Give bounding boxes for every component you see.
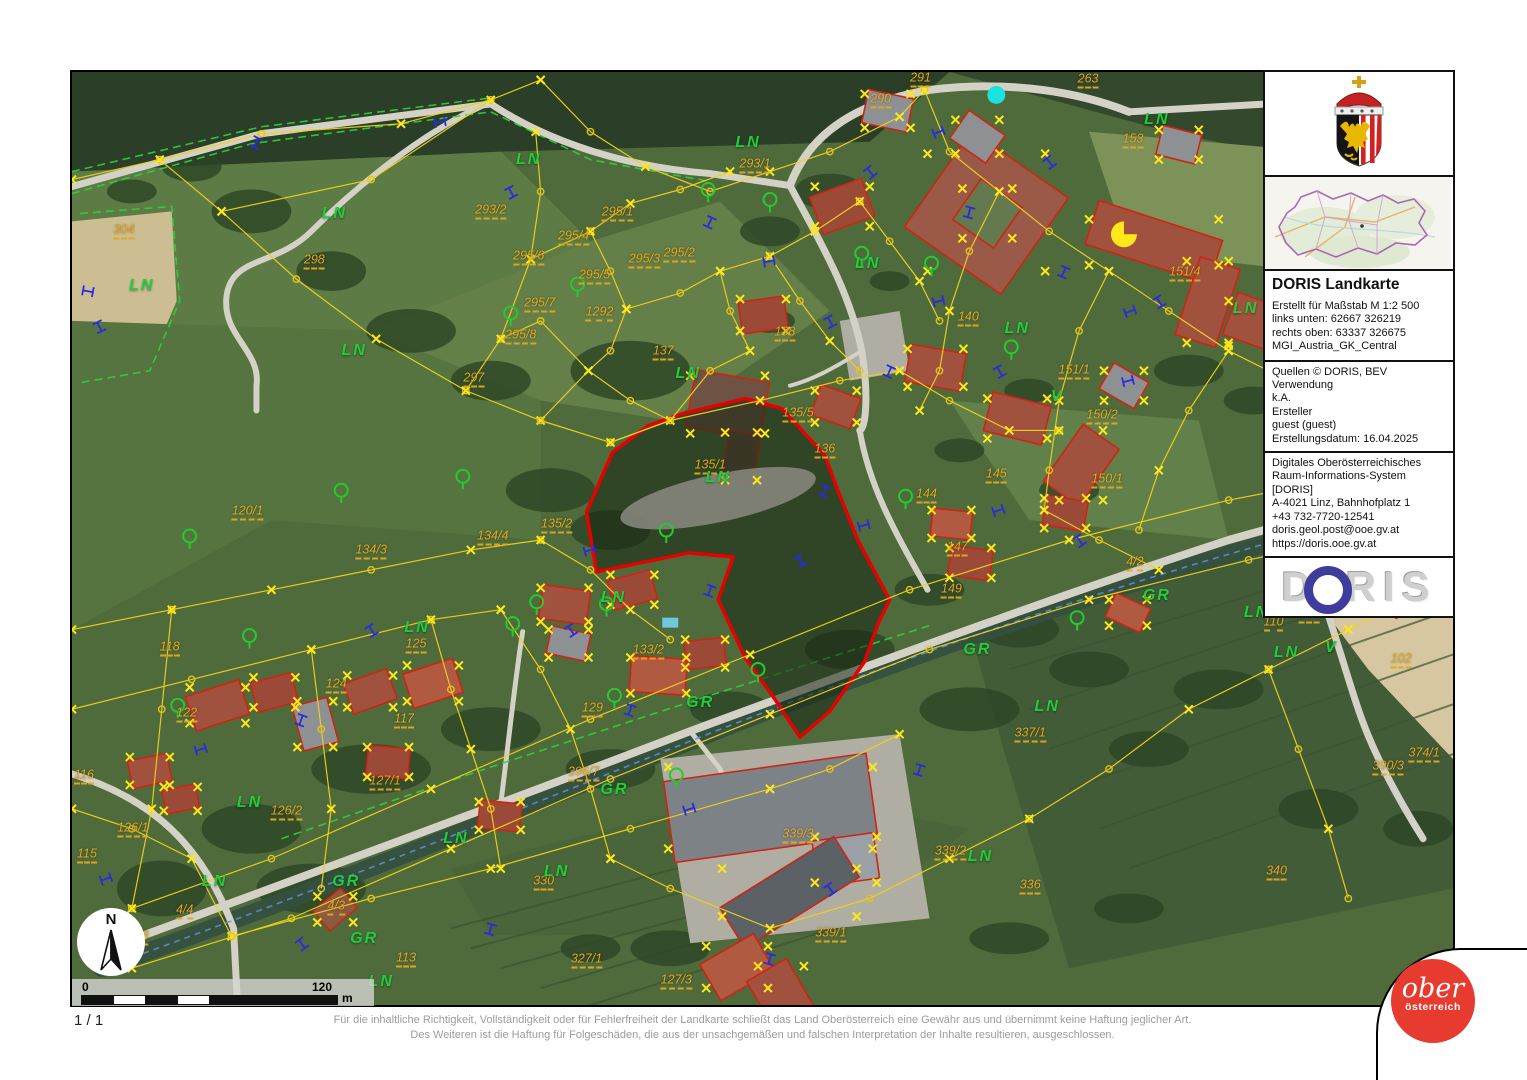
metadata-line: rechts oben: 63337 326675 <box>1272 327 1446 340</box>
metadata-line: links unten: 62667 326219 <box>1272 313 1446 326</box>
source-line: k.A. <box>1272 392 1446 405</box>
source-line: Verwendung <box>1272 379 1446 392</box>
doris-logo-ring-icon <box>1304 566 1352 614</box>
map-canvas[interactable] <box>72 72 1453 1005</box>
ooe-logo-text: ober <box>1391 973 1475 1004</box>
doris-logo: D RIS <box>1263 556 1455 618</box>
contact-line: https://doris.ooe.gv.at <box>1272 538 1446 551</box>
scale-segments <box>82 995 338 1003</box>
source-line: Ersteller <box>1272 406 1446 419</box>
info-panel: DORIS Landkarte Erstellt für Maßstab M 1… <box>1263 70 1455 618</box>
scale-start: 0 <box>82 980 89 994</box>
contact-line: Raum-Informations-System [DORIS] <box>1272 470 1446 497</box>
map-area[interactable]: 304298293/2293/1295/1295/4295/6295/2295/… <box>70 70 1455 1007</box>
contact-line: A-4021 Linz, Bahnhofplatz 1 <box>1272 497 1446 510</box>
contact-line: doris.geol.post@ooe.gv.at <box>1272 524 1446 537</box>
coat-of-arms <box>1263 70 1455 177</box>
source-line: Quellen © DORIS, BEV <box>1272 366 1446 379</box>
north-label: N <box>77 911 145 928</box>
cyan-point-marker <box>987 86 1005 104</box>
scale-bar: 0 120 m <box>72 979 374 1006</box>
contact-line: Digitales Oberösterreichisches <box>1272 457 1446 470</box>
contact-line: +43 732-7720-12541 <box>1272 511 1446 524</box>
compass-needle-icon <box>94 928 128 972</box>
overview-map <box>1263 175 1455 271</box>
disclaimer-line: Für die inhaltliche Richtigkeit, Vollstä… <box>70 1013 1455 1028</box>
disclaimer: Für die inhaltliche Richtigkeit, Vollstä… <box>70 1013 1455 1043</box>
metadata-line: Erstellt für Maßstab M 1:2 500 <box>1272 300 1446 313</box>
scale-unit: m <box>342 991 353 1005</box>
metadata-line: MGI_Austria_GK_Central <box>1272 340 1446 353</box>
contact-info: Digitales Oberösterreichisches Raum-Info… <box>1263 451 1455 558</box>
source-line: Erstellungsdatum: 16.04.2025 <box>1272 433 1446 446</box>
location-marker <box>1360 224 1364 228</box>
scale-end: 120 <box>312 980 332 994</box>
disclaimer-line: Des Weiteren ist die Haftung für Folgesc… <box>70 1028 1455 1043</box>
north-arrow: N <box>77 908 145 976</box>
overview-map-canvas <box>1265 177 1451 269</box>
ooe-logo-circle: ober österreich <box>1391 959 1475 1043</box>
doris-logo-ris: RIS <box>1346 563 1437 611</box>
map-metadata: DORIS Landkarte Erstellt für Maßstab M 1… <box>1263 269 1455 362</box>
page-title: DORIS Landkarte <box>1272 276 1446 294</box>
source-line: guest (guest) <box>1272 419 1446 432</box>
upper-austria-arms-icon <box>1304 74 1414 174</box>
source-info: Quellen © DORIS, BEV Verwendung k.A. Ers… <box>1263 360 1455 453</box>
